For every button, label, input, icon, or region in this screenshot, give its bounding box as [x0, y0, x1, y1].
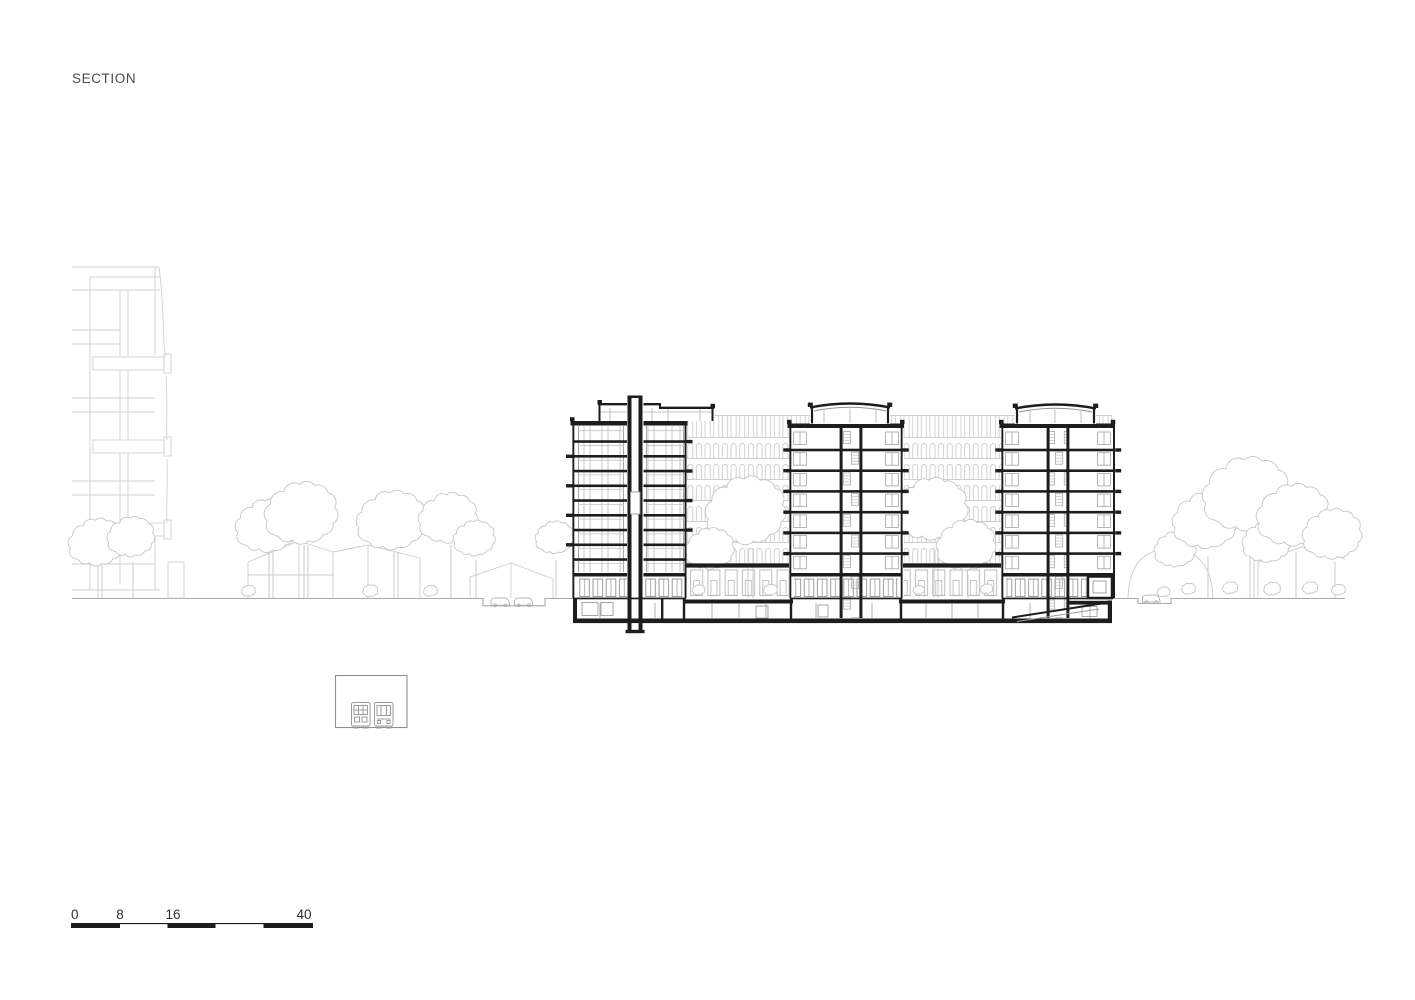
elevator-shaft — [626, 396, 645, 634]
left-penthouse — [598, 400, 716, 421]
stair-shaft — [843, 430, 860, 618]
architectural-section-sheet: SECTION — [0, 0, 1415, 1000]
right-penthouse — [1013, 404, 1098, 424]
middle-penthouse — [808, 403, 892, 424]
middle-tower-section — [783, 403, 908, 618]
scale-label-16: 16 — [165, 907, 180, 922]
car-icon — [515, 598, 534, 607]
scale-bar: 0 8 16 40 — [71, 907, 313, 928]
bay2-slab — [899, 563, 1005, 567]
courtyard-bay-2-elevation — [894, 437, 1002, 598]
stair-shaft — [1050, 430, 1067, 618]
scale-label-40: 40 — [296, 907, 311, 922]
bay1-slab — [683, 563, 793, 567]
right-tower-section — [995, 404, 1121, 618]
rail-tunnel-box — [336, 676, 408, 729]
courtyard-bay-1-elevation — [685, 437, 790, 598]
section-drawing: 0 8 16 40 — [0, 0, 1415, 1000]
scale-bar-segments — [71, 923, 313, 928]
car-icon — [491, 598, 510, 607]
scale-label-8: 8 — [116, 907, 124, 922]
building-section — [566, 396, 1121, 634]
scale-label-0: 0 — [71, 907, 79, 922]
car-icon — [1143, 595, 1161, 603]
